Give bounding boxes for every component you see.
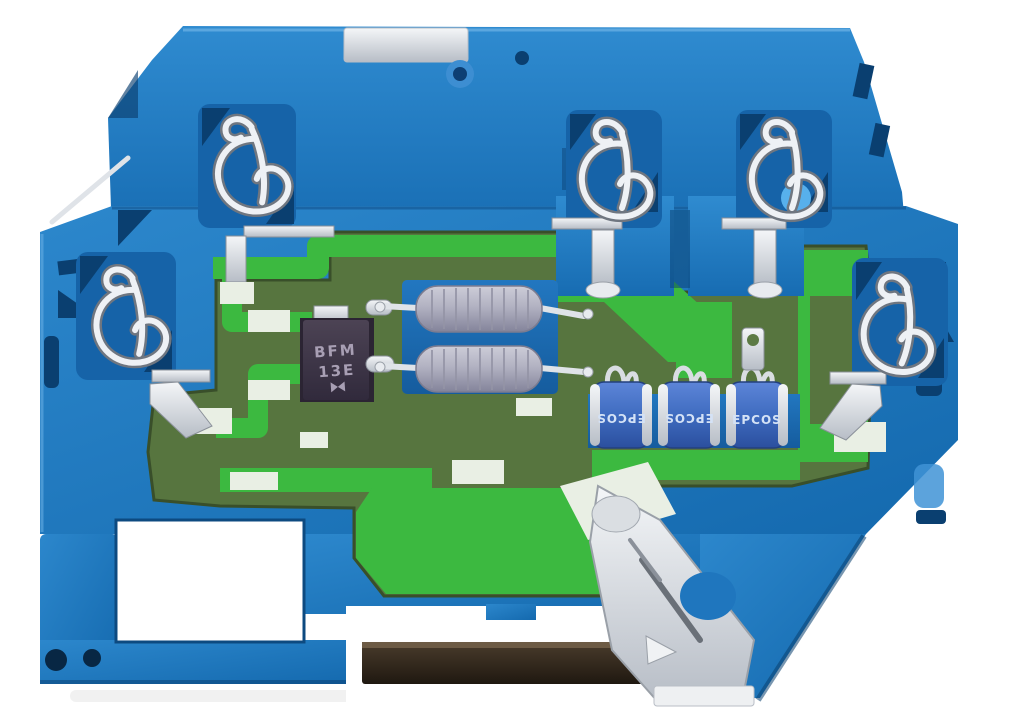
- foot-hole: [83, 649, 101, 667]
- solder-joint: [592, 496, 640, 532]
- tube-brand-label: EPCOS: [596, 411, 646, 425]
- housing-window: [116, 520, 304, 642]
- bracket-hole: [680, 572, 736, 620]
- tube-brand-label: EPCOS: [732, 413, 782, 427]
- terminal-pin: [742, 328, 764, 370]
- diode-marking-line2: 13E: [318, 361, 356, 382]
- product-photo-terminal-block: BFM 13E EPCOS: [0, 0, 1010, 720]
- diode-marking-line1: BFM: [313, 341, 357, 362]
- marking-strip: [344, 28, 468, 62]
- din-rail-bar: [362, 642, 650, 684]
- tube-brand-label: EPCOS: [664, 411, 714, 425]
- foot-hole: [45, 649, 67, 671]
